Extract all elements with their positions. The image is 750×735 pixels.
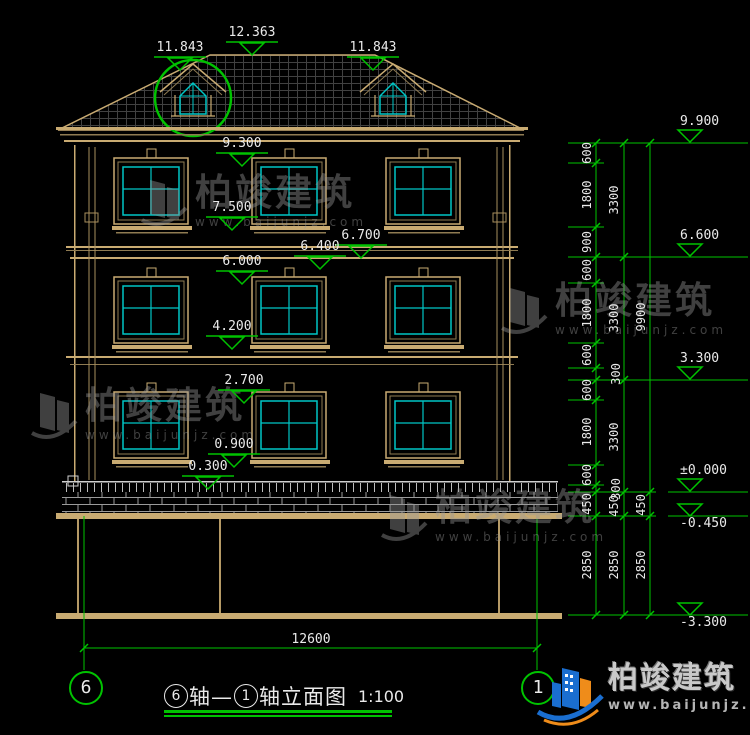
elevation-value: 2.700 — [208, 374, 280, 388]
elevation-symbol-icon — [196, 215, 268, 245]
dimension-value: 2850 — [607, 543, 621, 587]
axis-bubble-6: 6 — [69, 671, 103, 705]
elevation-symbol-icon — [216, 40, 288, 70]
dimension-value: 300 — [609, 352, 623, 396]
brand-logo-icon — [378, 487, 428, 545]
title-sep: 轴— — [189, 681, 233, 711]
elevation-symbol-icon — [206, 151, 278, 181]
elevation-value: 12.363 — [216, 26, 288, 40]
title-suffix: 轴立面图 — [259, 681, 347, 711]
level-triangle-icon — [676, 602, 704, 616]
level-value: 6.600 — [664, 229, 750, 243]
level-triangle-icon — [676, 129, 704, 143]
elevation-value: 11.843 — [144, 41, 216, 55]
house-elevation-svg — [0, 0, 750, 735]
dimension-value: 450 — [607, 484, 621, 528]
elevation-marker: 6.000 — [206, 255, 278, 299]
level-marker: 9.900 — [664, 115, 750, 143]
site-logo-text-group: 柏竣建筑 www.baijunjz.com — [608, 662, 750, 713]
dimension-value: 3300 — [607, 296, 621, 340]
hip-roof — [58, 55, 524, 130]
level-triangle-icon — [676, 503, 704, 517]
elevation-symbol-icon — [206, 269, 278, 299]
level-triangle-icon — [676, 478, 704, 492]
dimension-value: 600 — [580, 248, 594, 292]
dimension-value: 1800 — [580, 173, 594, 217]
site-logo: 柏竣建筑 www.baijunjz.com — [534, 662, 750, 730]
level-value: ±0.000 — [664, 464, 750, 478]
elevation-value: 6.400 — [284, 240, 356, 254]
elevation-value: 9.300 — [206, 137, 278, 151]
elevation-marker: 6.400 — [284, 240, 356, 284]
elevation-symbol-icon — [208, 388, 280, 418]
elevation-symbol-icon — [144, 55, 216, 85]
dimension-value: 3300 — [607, 178, 621, 222]
drawing-title: 6 轴— 1 轴立面图 1:100 — [164, 681, 404, 711]
elevation-marker: 4.200 — [196, 320, 268, 364]
watermark: 柏竣建筑 www.baijunjz.com — [378, 487, 607, 545]
elevation-value: 4.200 — [196, 320, 268, 334]
level-value: 3.300 — [664, 352, 750, 366]
level-marker: -0.450 — [664, 503, 750, 531]
level-value: -0.450 — [664, 517, 750, 531]
elevation-value: 0.900 — [198, 438, 270, 452]
elevation-marker: 11.843 — [144, 41, 216, 85]
elevation-symbol-icon — [337, 55, 409, 85]
watermark-url-text: www.baijunjz.com — [435, 530, 607, 544]
title-axis-b: 1 — [234, 684, 258, 708]
level-marker: 3.300 — [664, 352, 750, 380]
elevation-marker: 7.500 — [196, 201, 268, 245]
dimension-value: 9900 — [634, 295, 648, 339]
level-value: 9.900 — [664, 115, 750, 129]
brand-logo-icon — [28, 385, 78, 443]
elevation-value: 7.500 — [196, 201, 268, 215]
level-triangle-icon — [676, 366, 704, 380]
dimension-value: 1800 — [580, 291, 594, 335]
level-marker: ±0.000 — [664, 464, 750, 492]
site-logo-icon — [534, 662, 606, 730]
site-logo-brand-text: 柏竣建筑 — [608, 662, 750, 696]
elevation-marker: 9.300 — [206, 137, 278, 181]
level-marker: -3.300 — [664, 602, 750, 630]
level-marker: 6.600 — [664, 229, 750, 257]
elevation-symbol-icon — [196, 334, 268, 364]
elevation-symbol-icon — [284, 254, 356, 284]
dimension-value: 3300 — [607, 415, 621, 459]
dimension-value: 450 — [580, 482, 594, 526]
dimension-value: 2850 — [580, 543, 594, 587]
title-underline-1 — [164, 710, 392, 713]
dimension-value: 450 — [634, 483, 648, 527]
dimension-value: 600 — [580, 131, 594, 175]
elevation-marker: 2.700 — [208, 374, 280, 418]
elevation-marker: 0.300 — [172, 460, 244, 504]
elevation-value: 0.300 — [172, 460, 244, 474]
level-value: -3.300 — [664, 616, 750, 630]
overall-width-dimension: 12600 — [283, 632, 339, 647]
site-logo-url-text: www.baijunjz.com — [608, 698, 750, 713]
eave-cornice — [56, 127, 528, 142]
elevation-value: 6.000 — [206, 255, 278, 269]
title-axis-a: 6 — [164, 684, 188, 708]
cad-elevation-drawing: 12600 6 1 6 轴— 1 轴立面图 1:100 柏竣建筑 www.bai… — [0, 0, 750, 735]
dimension-value: 600 — [580, 368, 594, 412]
title-scale: 1:100 — [358, 687, 404, 706]
dimension-value: 1800 — [580, 410, 594, 454]
elevation-marker: 12.363 — [216, 26, 288, 70]
floor-band-lower — [66, 356, 518, 365]
dimension-value: 2850 — [634, 543, 648, 587]
title-underline-2 — [164, 715, 392, 717]
brand-logo-icon — [498, 280, 548, 338]
elevation-value: 11.843 — [337, 41, 409, 55]
level-triangle-icon — [676, 243, 704, 257]
elevation-symbol-icon — [172, 474, 244, 504]
elevation-marker: 11.843 — [337, 41, 409, 85]
brand-logo-icon — [138, 172, 188, 230]
